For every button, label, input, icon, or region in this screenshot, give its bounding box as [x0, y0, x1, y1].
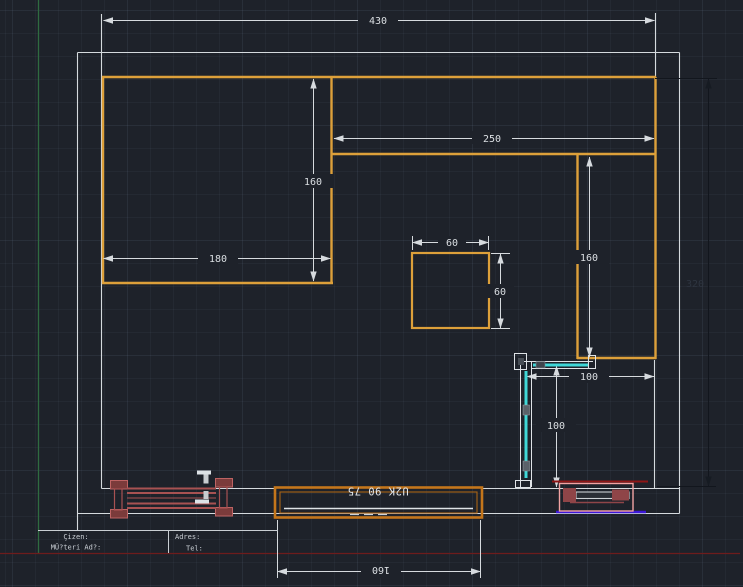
dim-right-run-width[interactable]: 250 — [334, 131, 654, 145]
radiator-left[interactable] — [111, 471, 233, 519]
entry-door[interactable]: U2K 90 75 — [275, 485, 482, 518]
titleblock-customer-label: MÜ?teri Ad?: — [51, 543, 102, 552]
dim-door-width-label: 160 — [372, 564, 390, 575]
dim-island-width-label: 60 — [446, 238, 458, 249]
shower-foot — [516, 481, 531, 488]
dim-left-counter-width[interactable]: 180 — [104, 252, 331, 265]
dim-right-counter-depth[interactable]: 160 — [569, 157, 609, 357]
drawing-canvas[interactable]: 430 250 160 180 60 — [0, 0, 743, 587]
radiator-right[interactable] — [552, 482, 648, 513]
island-square[interactable] — [412, 253, 489, 328]
dim-door-width[interactable]: 160 — [278, 520, 481, 578]
titleblock-drawn-by-label: Çizen: — [63, 533, 88, 541]
dim-island-width[interactable]: 60 — [413, 236, 489, 250]
dim-left-counter-depth[interactable]: 160 — [293, 79, 333, 281]
dim-right-run-label: 250 — [483, 134, 501, 145]
dim-room-depth[interactable]: 320 — [655, 79, 717, 487]
dim-island-depth-label: 60 — [494, 287, 506, 298]
counter-outline[interactable] — [102, 76, 656, 359]
dim-room-depth-label: 320 — [686, 279, 704, 290]
dim-shower-depth-label: 100 — [547, 421, 565, 432]
dim-total-width-label: 430 — [369, 16, 387, 27]
door-tag-label: U2K 90 75 — [347, 485, 408, 497]
dim-shower-width-label: 100 — [580, 372, 598, 383]
dim-right-depth-label: 160 — [580, 253, 598, 264]
title-block: Çizen: MÜ?teri Ad?: Adres: Tel: — [38, 530, 278, 553]
cad-viewport[interactable]: 430 250 160 180 60 — [0, 0, 743, 587]
dim-island-depth[interactable]: 60 — [486, 254, 514, 329]
dim-left-width-label: 180 — [209, 254, 227, 265]
dim-total-width[interactable]: 430 — [104, 13, 655, 27]
dim-left-depth-label: 160 — [304, 177, 322, 188]
radiator-valves — [195, 471, 211, 504]
dim-shower-width[interactable]: 100 — [527, 370, 654, 383]
dim-shower-depth[interactable]: 100 — [536, 366, 576, 487]
shower-handle — [523, 461, 530, 471]
titleblock-address-label: Adres: — [175, 533, 200, 541]
shower-handle — [523, 405, 530, 415]
titleblock-phone-label: Tel: — [186, 545, 203, 553]
ucs-axes — [0, 0, 740, 554]
